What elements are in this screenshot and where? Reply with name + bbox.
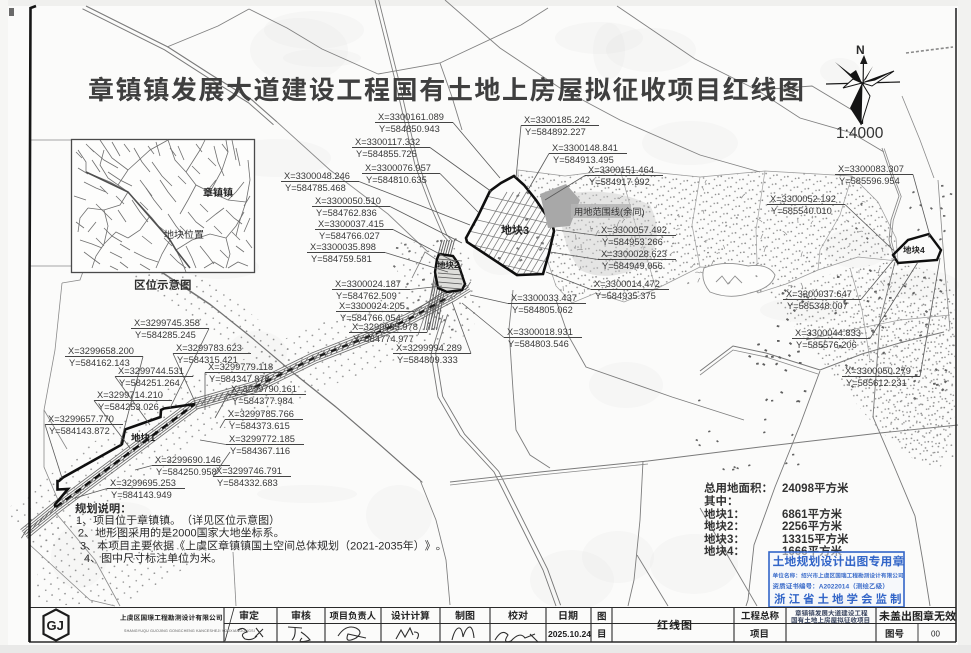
svg-text:Y=584373.615: Y=584373.615 xyxy=(229,421,290,431)
svg-text:Y=584332.683: Y=584332.683 xyxy=(217,478,278,488)
svg-text:Y=584935.375: Y=584935.375 xyxy=(595,291,656,301)
svg-text:X=3300151.464: X=3300151.464 xyxy=(588,165,654,175)
svg-text:N: N xyxy=(856,43,865,57)
svg-text:X=3300052.192: X=3300052.192 xyxy=(770,194,836,204)
svg-text:X=3300014.472: X=3300014.472 xyxy=(594,279,660,289)
svg-text:Y=584850.943: Y=584850.943 xyxy=(379,124,440,134)
svg-text:4: 4 xyxy=(727,546,734,558)
svg-text:X=3300076.957: X=3300076.957 xyxy=(365,163,431,173)
svg-text:X=3300050.510: X=3300050.510 xyxy=(315,196,381,206)
svg-text:X=3300185.242: X=3300185.242 xyxy=(524,115,590,125)
svg-text:2256: 2256 xyxy=(782,521,808,533)
svg-text:X=3300044.833: X=3300044.833 xyxy=(795,328,861,338)
svg-text:Y=584762.509: Y=584762.509 xyxy=(336,291,397,301)
svg-text:X=3299658.200: X=3299658.200 xyxy=(68,346,134,356)
svg-text:Y=584377.984: Y=584377.984 xyxy=(232,396,293,406)
svg-text:1:4000: 1:4000 xyxy=(836,125,884,142)
svg-text:X=3299779.118: X=3299779.118 xyxy=(208,362,273,372)
svg-text:Y=584251.264: Y=584251.264 xyxy=(119,378,180,388)
svg-text:2025.10.24: 2025.10.24 xyxy=(548,629,591,639)
svg-text:Y=584143.872: Y=584143.872 xyxy=(49,426,110,436)
svg-text:X=3299657.770: X=3299657.770 xyxy=(48,414,114,424)
svg-text:(: ( xyxy=(620,207,623,217)
svg-text:X=3299746.791: X=3299746.791 xyxy=(216,466,282,476)
svg-text:X=3299714.210: X=3299714.210 xyxy=(97,390,163,400)
svg-text:1: 1 xyxy=(727,509,734,521)
svg-text:Y=584285.245: Y=584285.245 xyxy=(135,330,196,340)
svg-text:Y=584759.581: Y=584759.581 xyxy=(311,254,372,264)
svg-text:X=3299790.161: X=3299790.161 xyxy=(231,384,297,394)
svg-text:X=3300037.647: X=3300037.647 xyxy=(786,289,852,299)
svg-text:Y=584253.026: Y=584253.026 xyxy=(98,402,159,412)
svg-text:X=3299744.531: X=3299744.531 xyxy=(118,366,184,376)
svg-text:GJ: GJ xyxy=(47,618,64,633)
svg-text:1: 1 xyxy=(150,433,156,444)
svg-text:X=3300028.623: X=3300028.623 xyxy=(601,249,667,259)
svg-text:13315: 13315 xyxy=(782,534,815,546)
svg-text:3: 3 xyxy=(80,541,86,553)
svg-text:X=3299745.358: X=3299745.358 xyxy=(134,318,200,328)
svg-text:X=3300050.279: X=3300050.279 xyxy=(845,366,911,376)
svg-text:X=3300148.841: X=3300148.841 xyxy=(552,143,618,153)
svg-text:Y=584917.992: Y=584917.992 xyxy=(589,177,650,187)
svg-text:Y=584805.062: Y=584805.062 xyxy=(512,305,573,315)
svg-text:24098: 24098 xyxy=(782,483,815,495)
svg-text:00: 00 xyxy=(931,630,940,639)
svg-text:Y=584953.266: Y=584953.266 xyxy=(602,237,663,247)
svg-text:Y=585596.954: Y=585596.954 xyxy=(839,176,900,186)
svg-text:2021-2035: 2021-2035 xyxy=(350,541,403,553)
svg-text:Y=584803.546: Y=584803.546 xyxy=(508,339,569,349)
svg-text:2000: 2000 xyxy=(172,528,196,540)
svg-text:Y=585348.007: Y=585348.007 xyxy=(787,301,848,311)
svg-text:X=3300018.931: X=3300018.931 xyxy=(507,327,573,337)
svg-text:X=3300033.437: X=3300033.437 xyxy=(511,293,577,303)
svg-text:Y=584250.958: Y=584250.958 xyxy=(156,467,217,477)
svg-text:2: 2 xyxy=(78,528,84,540)
svg-text:X=3300117.332: X=3300117.332 xyxy=(355,137,420,147)
svg-text:Y=584809.333: Y=584809.333 xyxy=(397,355,458,365)
svg-text:X=3300057.492: X=3300057.492 xyxy=(601,225,667,235)
svg-text:Y=584347.878: Y=584347.878 xyxy=(209,374,270,384)
svg-text:X=3299772.185: X=3299772.185 xyxy=(229,434,295,444)
svg-text:A2022014: A2022014 xyxy=(819,584,850,591)
svg-text:X=3300161.089: X=3300161.089 xyxy=(378,112,444,122)
svg-text:Y=584810.635: Y=584810.635 xyxy=(366,175,427,185)
svg-text:X=3299690.146: X=3299690.146 xyxy=(155,455,221,465)
svg-text:SHANGYUQU GUOJING GONGCHENG KA: SHANGYUQU GUOJING GONGCHENG KANCESHEJI Y… xyxy=(124,629,255,633)
svg-text:X=3300035.898: X=3300035.898 xyxy=(310,242,376,252)
svg-text:1: 1 xyxy=(76,515,82,527)
svg-text:X=3299783.623: X=3299783.623 xyxy=(176,343,242,353)
svg-text:X=3300024.187: X=3300024.187 xyxy=(335,279,401,289)
svg-text:Y=585576.206: Y=585576.206 xyxy=(796,340,857,350)
svg-text:X=3300083.307: X=3300083.307 xyxy=(838,164,904,174)
svg-text:Y=584766.027: Y=584766.027 xyxy=(319,231,380,241)
svg-text:Y=584855.725: Y=584855.725 xyxy=(356,149,417,159)
svg-text:Y=584785.468: Y=584785.468 xyxy=(285,183,346,193)
svg-text:Y=585612.231: Y=585612.231 xyxy=(846,378,907,388)
svg-text:2: 2 xyxy=(727,521,733,533)
svg-text:X=3300024.205: X=3300024.205 xyxy=(339,301,405,311)
svg-text:3: 3 xyxy=(523,225,529,237)
svg-text:4: 4 xyxy=(84,553,90,565)
svg-text:X=3300037.415: X=3300037.415 xyxy=(318,219,384,229)
svg-text:Y=584367.116: Y=584367.116 xyxy=(230,446,290,456)
svg-text:3: 3 xyxy=(727,534,733,546)
svg-text:Y=584913.495: Y=584913.495 xyxy=(553,155,614,165)
svg-text:X=3299785.766: X=3299785.766 xyxy=(228,409,294,419)
svg-text:Y=584949.056: Y=584949.056 xyxy=(602,261,663,271)
svg-text:4: 4 xyxy=(920,245,925,255)
svg-text:X=3299695.253: X=3299695.253 xyxy=(110,478,176,488)
svg-text:6861: 6861 xyxy=(782,509,808,521)
svg-text:X=3300048.246: X=3300048.246 xyxy=(284,171,350,181)
svg-text:X=3299985.978: X=3299985.978 xyxy=(352,322,418,332)
svg-text:Y=584892.227: Y=584892.227 xyxy=(525,127,586,137)
svg-text:X=3299994.289: X=3299994.289 xyxy=(396,343,462,353)
svg-text:Y=584143.949: Y=584143.949 xyxy=(111,490,172,500)
svg-text:): ) xyxy=(642,207,645,217)
svg-text:Y=585540.010: Y=585540.010 xyxy=(771,206,832,216)
svg-text:Y=584762.836: Y=584762.836 xyxy=(316,208,377,218)
